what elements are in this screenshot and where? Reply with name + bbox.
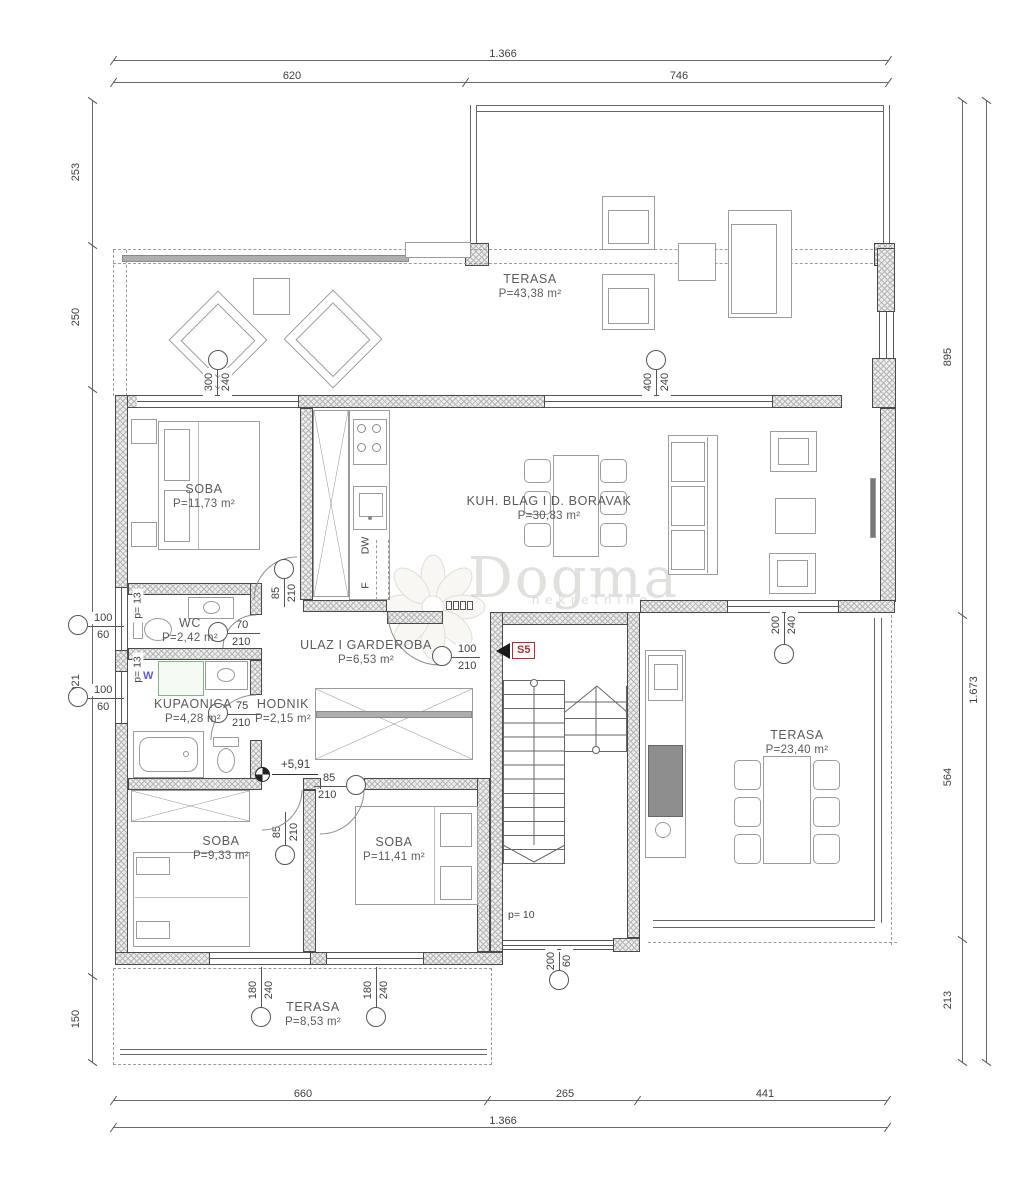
room-name: TERASA [503, 272, 557, 286]
room-label-kuhinja: KUH. BLAG I D. BORAVAK P=30,83 m² [467, 494, 632, 524]
room-area: P=2,15 m² [255, 712, 311, 727]
room-label-soba1: SOBA P=11,73 m² [173, 482, 235, 512]
room-label-terasa-top: TERASA P=43,38 m² [499, 272, 562, 302]
callout-circle [68, 687, 88, 707]
glass-block [446, 601, 452, 610]
callout-circle [275, 845, 295, 865]
room-name: SOBA [375, 835, 412, 849]
door-arc-soba3 [320, 790, 364, 834]
level-marker-icon [255, 767, 270, 782]
entry-arrow-icon [496, 643, 510, 659]
room-name: SOBA [202, 834, 239, 848]
room-area: P=23,40 m² [766, 743, 829, 758]
room-label-ulaz: ULAZ I GARDEROBA P=6,53 m² [300, 638, 432, 668]
floor-plan-canvas: Dogma nekretnine 1.366 620 746 660 265 4… [0, 0, 1031, 1200]
room-name: KUH. BLAG I D. BORAVAK [467, 494, 632, 508]
callout-circle [274, 559, 294, 579]
callout-circle [549, 970, 569, 990]
callout-circle [68, 615, 88, 635]
room-label-hodnik: HODNIK P=2,15 m² [255, 697, 311, 727]
glass-block [460, 601, 466, 610]
room-label-wc: WC P=2,42 m² [162, 616, 218, 646]
glass-block [467, 601, 473, 610]
room-area: P=8,53 m² [285, 1015, 341, 1030]
room-area: P=2,42 m² [162, 631, 218, 646]
room-area: P=43,38 m² [499, 287, 562, 302]
room-name: WC [179, 616, 201, 630]
callout-circle [432, 646, 452, 666]
line-overlay [0, 0, 1031, 1200]
washing-machine-label: W [143, 670, 153, 682]
room-name: TERASA [286, 1000, 340, 1014]
callout-circle [208, 350, 228, 370]
room-name: TERASA [770, 728, 824, 742]
room-label-kupaonica: KUPAONICA P=4,28 m² [154, 697, 232, 727]
room-area: P=6,53 m² [300, 653, 432, 668]
room-label-terasa-bottom: TERASA P=8,53 m² [285, 1000, 341, 1030]
door-arc-soba2 [262, 790, 302, 830]
apartment-tag: S5 [512, 642, 535, 659]
room-name: SOBA [185, 482, 222, 496]
room-label-soba3: SOBA P=11,41 m² [363, 835, 425, 865]
room-name: KUPAONICA [154, 697, 232, 711]
callout-circle [251, 1007, 271, 1027]
room-name: ULAZ I GARDEROBA [300, 638, 432, 652]
room-area: P=11,73 m² [173, 497, 235, 512]
callout-circle [346, 775, 366, 795]
room-area: P=11,41 m² [363, 850, 425, 865]
glass-block [453, 601, 459, 610]
callout-circle [774, 644, 794, 664]
callout-circle [646, 350, 666, 370]
room-name: HODNIK [257, 697, 309, 711]
callout-circle [366, 1007, 386, 1027]
room-area: P=30,83 m² [467, 509, 632, 524]
walkline-end-dot [593, 747, 600, 754]
room-area: P=4,28 m² [154, 712, 232, 727]
room-label-terasa-right: TERASA P=23,40 m² [766, 728, 829, 758]
room-label-soba2: SOBA P=9,33 m² [193, 834, 249, 864]
room-area: P=9,33 m² [193, 849, 249, 864]
stair-walk-arrow [503, 845, 565, 862]
walkline-start-dot [531, 680, 538, 687]
